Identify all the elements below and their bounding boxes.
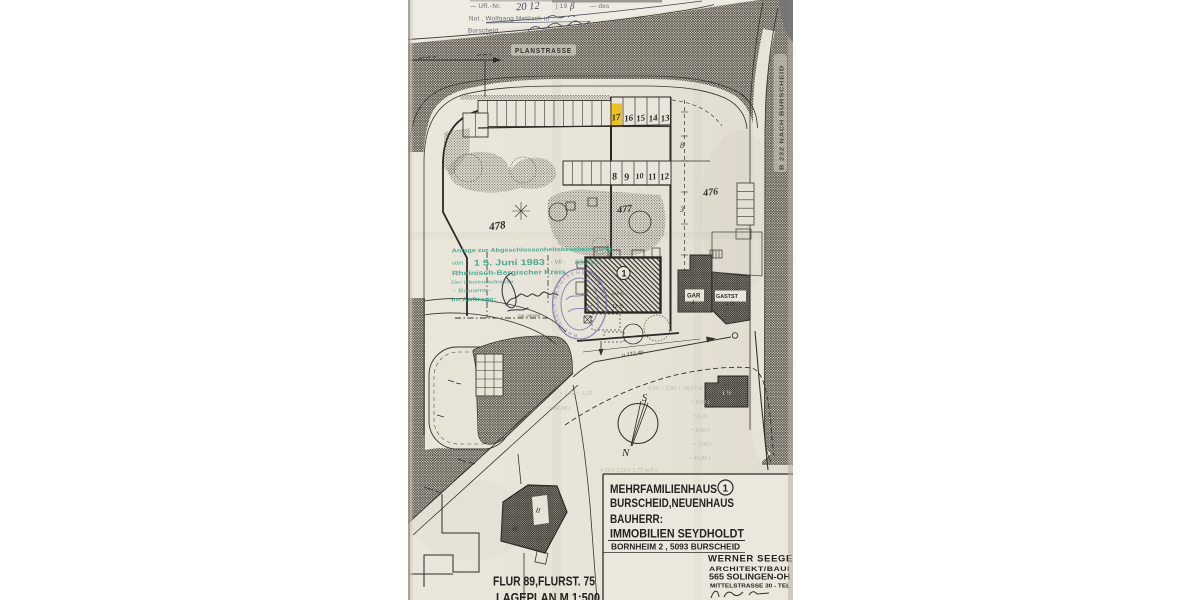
svg-text:Not , Wolfgang Mettlach i: Not , Wolfgang Mettlach in <box>469 16 550 23</box>
svg-text:vom: vom <box>452 261 463 267</box>
svg-text:3: 3 <box>679 205 684 214</box>
svg-text:10: 10 <box>635 171 644 181</box>
svg-text:IMMOBILIEN SEYDHOLDT: IMMOBILIEN SEYDHOLDT <box>610 527 745 541</box>
svg-text:N: N <box>621 447 630 459</box>
svg-text:Burscheid.: Burscheid. <box>468 28 500 35</box>
svg-text:1 5. Juni 1983: 1 5. Juni 1983 <box>474 257 546 268</box>
svg-text:565 SOLINGEN-OH: 565 SOLINGEN-OH <box>709 573 790 582</box>
svg-text:1: 1 <box>723 484 729 495</box>
svg-text:BURSCHEID,NEUENHAUS: BURSCHEID,NEUENHAUS <box>610 496 734 510</box>
svg-text:20 12: 20 12 <box>516 1 541 14</box>
svg-text:PLANSTRASSE: PLANSTRASSE <box>515 46 572 55</box>
svg-text:— des: — des <box>590 3 609 10</box>
svg-text:Im Auftrage:: Im Auftrage: <box>451 297 496 303</box>
svg-text:Der Oberkreisdirektor: Der Oberkreisdirektor <box>451 279 515 286</box>
svg-text:— UR.-Nr.: — UR.-Nr. <box>470 3 501 10</box>
svg-text:B 232 NACH BURSCHEID: B 232 NACH BURSCHEID <box>780 65 786 170</box>
svg-text:S: S <box>642 393 647 404</box>
svg-text:Rheinisch-Bergischer Kreis: Rheinisch-Bergischer Kreis <box>452 269 567 277</box>
svg-text:1 ½: 1 ½ <box>722 390 732 397</box>
svg-text:- Bauamt -: - Bauamt - <box>453 288 491 294</box>
svg-text:11: 11 <box>647 171 657 182</box>
svg-text:BAUHERR:: BAUHERR: <box>610 512 663 526</box>
svg-text:BORNHEIM 2 , 5093 BURSCHEID: BORNHEIM 2 , 5093 BURSCHEID <box>611 542 740 552</box>
svg-text:GAL.-BEZIRK: GAL.-BEZIRK <box>518 314 541 318</box>
svg-text:8: 8 <box>680 141 684 150</box>
svg-text:63/39/02: 63/39/02 <box>575 259 602 266</box>
svg-text:FLUR 89,FLURST. 75: FLUR 89,FLURST. 75 <box>493 575 595 589</box>
svg-text:MITTELSTRASSE 30 - TEL: MITTELSTRASSE 30 - TEL <box>710 584 791 590</box>
svg-text:1: 1 <box>622 269 627 279</box>
svg-text:WERNER SEEGE: WERNER SEEGE <box>708 554 793 564</box>
svg-text:478: 478 <box>487 219 506 233</box>
svg-text:11 ½: 11 ½ <box>612 303 624 310</box>
svg-text:x 1,50 = 3,25: x 1,50 = 3,25 <box>559 391 592 397</box>
svg-text:GASTST: GASTST <box>716 294 739 300</box>
svg-text:1 ½: 1 ½ <box>726 300 734 307</box>
svg-text:LAGEPLAN M 1:500: LAGEPLAN M 1:500 <box>496 590 600 600</box>
svg-text:4,50 x 3,50 x 5,75 m/0,5: 4,50 x 3,50 x 5,75 m/0,5 <box>600 467 658 474</box>
